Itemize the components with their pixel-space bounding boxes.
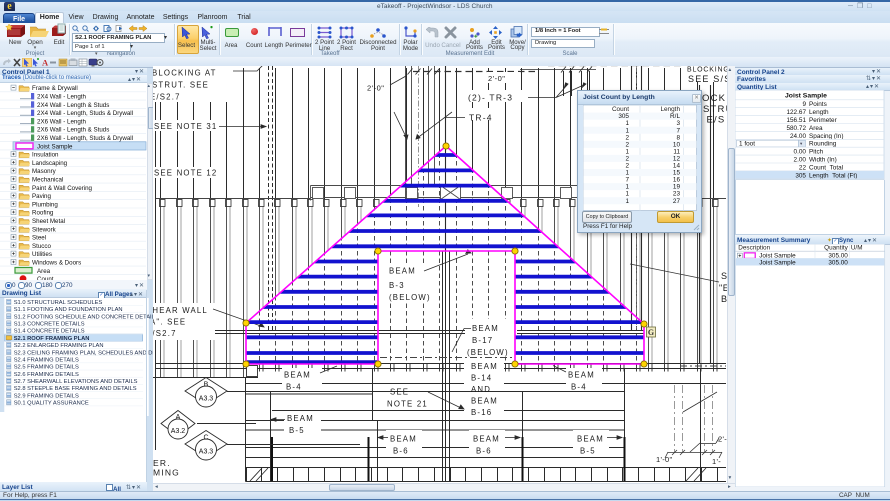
svg-text:BEAM: BEAM <box>389 267 416 276</box>
svg-text:S2.3 CEILING FRAMING PLAN, SCH: S2.3 CEILING FRAMING PLAN, SCHEDULES AND… <box>14 350 153 356</box>
svg-text:1: 1 <box>625 149 629 156</box>
svg-text:19: 19 <box>673 184 681 191</box>
svg-text:B-6: B-6 <box>393 447 409 456</box>
svg-text:2: 2 <box>625 134 629 141</box>
svg-text:1: 1 <box>625 198 629 205</box>
svg-text:305.00: 305.00 <box>828 259 848 266</box>
svg-text:Roofing: Roofing <box>32 209 54 216</box>
svg-text:1'-0": 1'-0" <box>656 455 672 464</box>
svg-text:BEAM: BEAM <box>471 397 498 406</box>
svg-text:S0.1 QUALITY ASSURANCE: S0.1 QUALITY ASSURANCE <box>14 400 89 406</box>
svg-text:U/M: U/M <box>851 245 863 252</box>
svg-text:2.00: 2.00 <box>794 157 807 164</box>
svg-text:2'-0": 2'-0" <box>488 74 505 83</box>
svg-text:Quantity: Quantity <box>824 245 849 252</box>
svg-text:2X4 Wall - Length: 2X4 Wall - Length <box>37 93 87 100</box>
svg-text:2'-: 2'- <box>718 435 727 444</box>
svg-text:Steel: Steel <box>32 234 46 241</box>
svg-text:12: 12 <box>673 156 681 163</box>
svg-text:15: 15 <box>673 170 681 177</box>
svg-text:R/L: R/L <box>670 113 680 120</box>
svg-text:S2.4 FRAMING DETAILS: S2.4 FRAMING DETAILS <box>14 357 79 363</box>
svg-text:Width (In): Width (In) <box>809 157 837 164</box>
svg-text:Paving: Paving <box>32 193 51 200</box>
svg-text:(BELOW): (BELOW) <box>389 293 431 302</box>
svg-text:Masonry: Masonry <box>32 168 57 175</box>
svg-text:BLOCKING AT: BLOCKING AT <box>153 69 217 78</box>
svg-text:1 foot: 1 foot <box>739 141 755 148</box>
svg-text:SEE: SEE <box>390 388 409 397</box>
svg-text:305: 305 <box>618 113 629 120</box>
svg-text:1: 1 <box>625 127 629 134</box>
svg-text:22: 22 <box>799 164 807 171</box>
svg-text:SHEAR WALL: SHEAR WALL <box>153 306 208 315</box>
svg-text:S1.2 FOOTING SCHEDULE AND CONC: S1.2 FOOTING SCHEDULE AND CONCRETE DETAI… <box>14 314 153 320</box>
svg-text:B-17: B-17 <box>472 336 493 345</box>
svg-text:Spacing (In): Spacing (In) <box>809 133 843 140</box>
svg-text:27: 27 <box>673 198 681 205</box>
svg-text:Insulation: Insulation <box>32 151 59 158</box>
svg-text:STRUT: STRUT <box>703 104 727 115</box>
svg-text:B-5: B-5 <box>289 426 305 435</box>
svg-text:S1.3 CONCRETE DETAILS: S1.3 CONCRETE DETAILS <box>14 321 85 327</box>
svg-text:BEAM: BEAM <box>568 371 595 380</box>
svg-text:A3.3: A3.3 <box>199 449 214 456</box>
svg-text:Paint & Wall Covering: Paint & Wall Covering <box>32 184 93 191</box>
svg-text:1: 1 <box>625 184 629 191</box>
svg-text:Joist Sample: Joist Sample <box>37 143 73 150</box>
svg-text:1: 1 <box>625 120 629 127</box>
svg-text:Joist Sample: Joist Sample <box>785 92 827 99</box>
svg-text:"E: "E <box>719 283 727 293</box>
svg-text:1: 1 <box>625 191 629 198</box>
svg-text:Area: Area <box>37 267 51 274</box>
svg-text:E/S2.7: E/S2.7 <box>153 93 181 102</box>
svg-text:Rounding: Rounding <box>809 141 837 148</box>
svg-text:BEAM: BEAM <box>472 324 499 333</box>
svg-text:SEE NOTE 12: SEE NOTE 12 <box>154 169 217 178</box>
svg-text:2X6 Wall - Length: 2X6 Wall - Length <box>37 118 87 125</box>
svg-text:Sheet Metal: Sheet Metal <box>32 218 65 225</box>
svg-text:S2.9 FRAMING DETAILS: S2.9 FRAMING DETAILS <box>14 393 79 399</box>
svg-text:S2.6 FRAMING DETAILS: S2.6 FRAMING DETAILS <box>14 371 79 377</box>
svg-text:A/S2.7: A/S2.7 <box>153 329 177 338</box>
svg-text:Length: Length <box>660 106 680 113</box>
svg-text:B-4: B-4 <box>286 383 302 392</box>
svg-text:1: 1 <box>625 170 629 177</box>
svg-text:Mechanical: Mechanical <box>32 176 63 183</box>
svg-text:0.00: 0.00 <box>794 149 807 156</box>
svg-text:23: 23 <box>673 191 681 198</box>
svg-text:Plumbing: Plumbing <box>32 201 58 208</box>
svg-text:S2.1 ROOF FRAMING PLAN: S2.1 ROOF FRAMING PLAN <box>14 335 90 341</box>
svg-text:BEAM: BEAM <box>287 414 314 423</box>
svg-text:Joist Sample: Joist Sample <box>759 259 796 266</box>
svg-text:Points: Points <box>809 101 827 108</box>
svg-text:C: C <box>203 435 208 442</box>
svg-text:BEAM: BEAM <box>284 371 311 380</box>
svg-text:Perimeter: Perimeter <box>809 117 838 124</box>
svg-text:S1.1 FOOTING AND FOUNDATION PL: S1.1 FOOTING AND FOUNDATION PLAN <box>14 307 123 313</box>
svg-text:(2)- TR-3: (2)- TR-3 <box>468 93 513 103</box>
svg-text:B-3: B-3 <box>389 281 405 290</box>
svg-text:Count_Total: Count_Total <box>809 164 843 171</box>
svg-text:Sitework: Sitework <box>32 226 57 233</box>
svg-text:TR-4: TR-4 <box>469 113 493 123</box>
svg-text:Windows & Doors: Windows & Doors <box>32 259 81 266</box>
svg-text:"A". SEE: "A". SEE <box>153 318 186 327</box>
svg-text:STRUT. SEE: STRUT. SEE <box>153 81 209 90</box>
svg-text:122.67: 122.67 <box>786 109 806 116</box>
svg-text:A: A <box>176 414 181 421</box>
svg-text:B-5: B-5 <box>580 447 596 456</box>
svg-text:BEAM: BEAM <box>471 362 498 371</box>
svg-text:8: 8 <box>676 134 680 141</box>
svg-text:MING: MING <box>153 468 180 478</box>
svg-text:S1.0 STRUCTURAL SCHEDULES: S1.0 STRUCTURAL SCHEDULES <box>14 300 103 306</box>
svg-text:2X6 Wall - Length & Studs: 2X6 Wall - Length & Studs <box>37 126 109 133</box>
svg-text:7: 7 <box>625 177 629 184</box>
svg-text:Landscaping: Landscaping <box>32 159 68 166</box>
svg-text:Length_Total (Ft): Length_Total (Ft) <box>809 172 857 179</box>
svg-text:16: 16 <box>673 177 681 184</box>
svg-text:G: G <box>648 328 654 337</box>
svg-text:Stucco: Stucco <box>32 242 51 249</box>
svg-text:14: 14 <box>673 163 681 170</box>
svg-text:S2.7 SHEARWALL ELEVATIONS AND: S2.7 SHEARWALL ELEVATIONS AND DETAILS <box>14 378 138 384</box>
svg-text:BEAM: BEAM <box>473 435 500 444</box>
svg-text:S2.5 FRAMING DETAILS: S2.5 FRAMING DETAILS <box>14 364 79 370</box>
svg-text:S2.2 ENLARGED FRAMING PLAN: S2.2 ENLARGED FRAMING PLAN <box>14 343 104 349</box>
svg-text:AND: AND <box>471 385 491 394</box>
svg-text:NOTE 21: NOTE 21 <box>387 400 428 409</box>
svg-text:S2.8 STEEPLE BASE FRAMING AND: S2.8 STEEPLE BASE FRAMING AND DETAILS <box>14 386 137 392</box>
svg-text:10: 10 <box>673 141 681 148</box>
svg-text:B: B <box>204 382 209 389</box>
svg-text:Count: Count <box>612 106 629 113</box>
svg-text:24.00: 24.00 <box>790 133 806 140</box>
svg-text:2X4 Wall - Length & Studs: 2X4 Wall - Length & Studs <box>37 101 109 108</box>
svg-text:SEE NOTE 31: SEE NOTE 31 <box>154 122 217 131</box>
svg-text:ER.: ER. <box>153 458 171 468</box>
svg-text:2: 2 <box>625 141 629 148</box>
svg-text:Description: Description <box>738 245 770 252</box>
svg-text:1'-: 1'- <box>712 457 721 466</box>
svg-text:2X6 Wall - Length, Studs & Dry: 2X6 Wall - Length, Studs & Drywall <box>37 135 133 142</box>
svg-text:SEE S/S: SEE S/S <box>688 74 727 84</box>
svg-text:B-16: B-16 <box>471 408 492 417</box>
svg-text:2X4 Wall - Length, Studs & Dry: 2X4 Wall - Length, Studs & Drywall <box>37 110 133 117</box>
svg-text:BEAM: BEAM <box>577 435 604 444</box>
svg-text:156.51: 156.51 <box>786 117 806 124</box>
svg-text:7: 7 <box>676 127 680 134</box>
svg-text:(BELOW): (BELOW) <box>467 348 509 357</box>
svg-text:BLOCKING: BLOCKING <box>687 67 727 74</box>
svg-text:Length: Length <box>809 109 829 116</box>
svg-text:2'-0": 2'-0" <box>367 84 384 93</box>
svg-text:305: 305 <box>795 172 806 179</box>
svg-text:2: 2 <box>625 156 629 163</box>
svg-text:9: 9 <box>802 101 806 108</box>
svg-text:2: 2 <box>625 163 629 170</box>
svg-text:Frame & Drywall: Frame & Drywall <box>32 85 78 92</box>
svg-text:B-14: B-14 <box>471 374 492 383</box>
svg-text:A: A <box>42 58 49 67</box>
svg-text:Utilities: Utilities <box>32 251 52 258</box>
svg-text:BEAM: BEAM <box>390 435 417 444</box>
svg-text:3: 3 <box>676 120 680 127</box>
svg-text:580.72: 580.72 <box>786 125 806 132</box>
svg-text:11: 11 <box>673 149 680 156</box>
svg-text:A3.3: A3.3 <box>199 396 214 403</box>
svg-text:B-6: B-6 <box>476 447 492 456</box>
svg-text:A3.2: A3.2 <box>171 428 186 435</box>
svg-text:Pitch: Pitch <box>809 149 824 156</box>
svg-text:Area: Area <box>809 125 823 132</box>
svg-text:B-4: B-4 <box>571 383 587 392</box>
